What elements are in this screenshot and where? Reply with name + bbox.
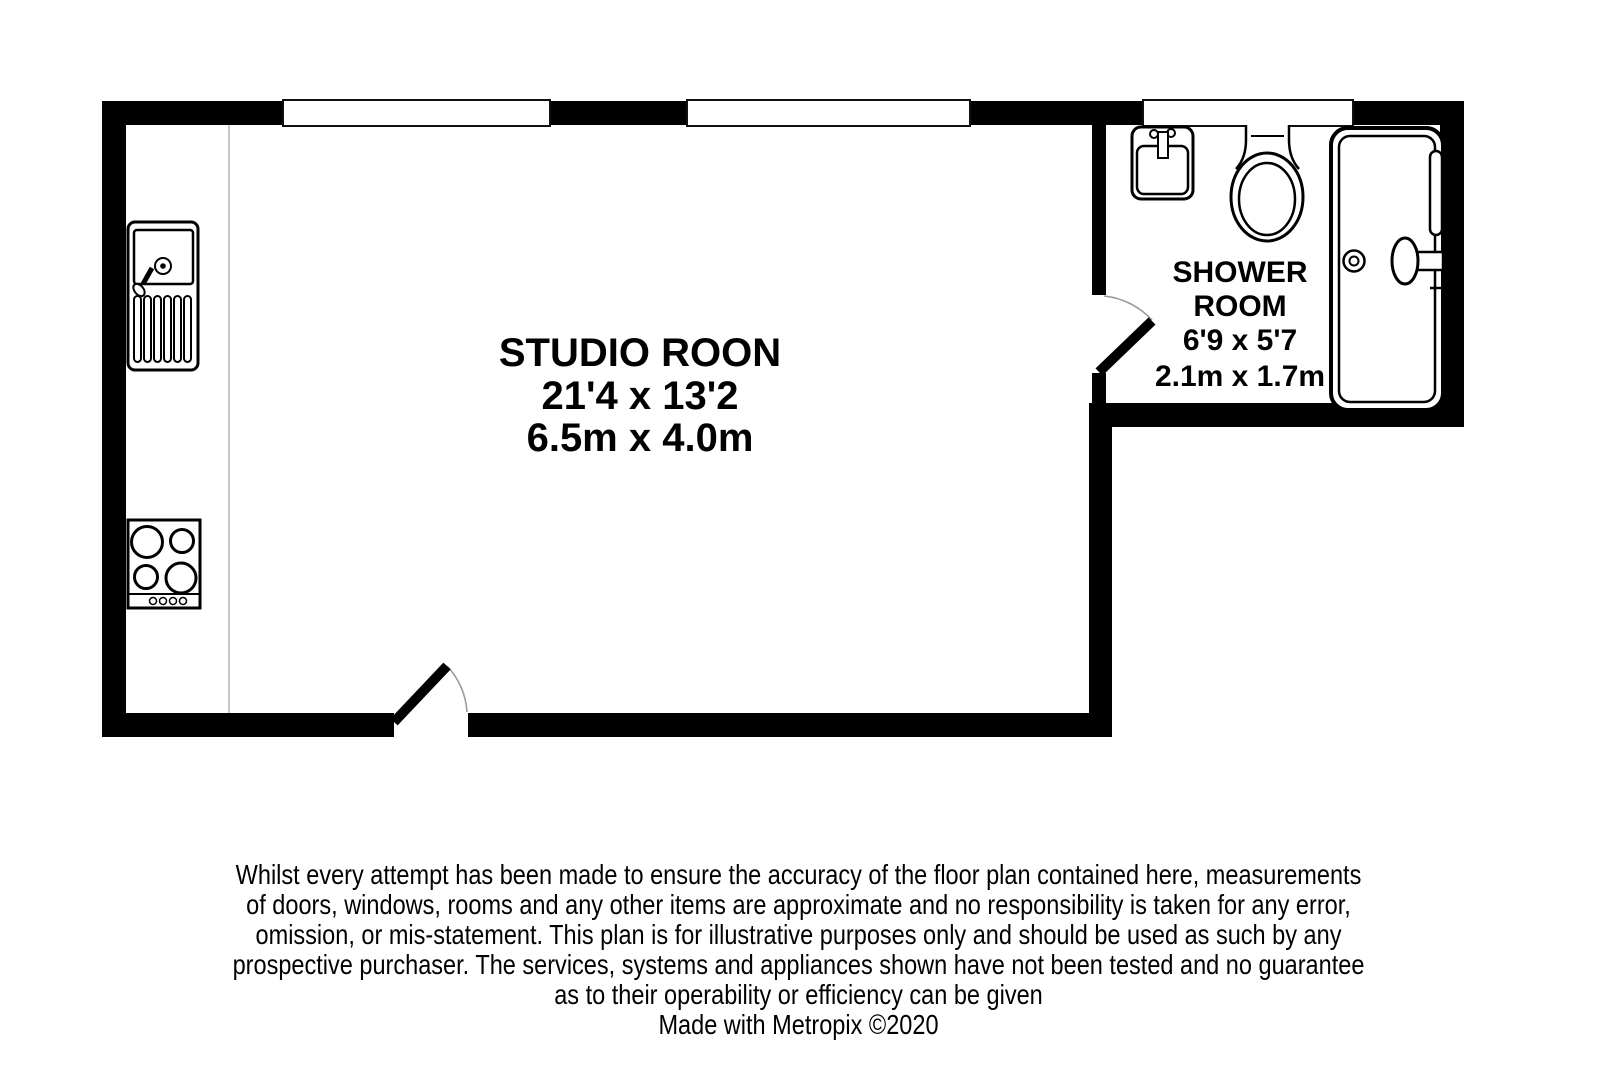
shower-room-size-metric: 2.1m x 1.7m: [1155, 360, 1325, 393]
wall-bottom-left-segment: [102, 713, 394, 737]
shower-head-icon: [1392, 238, 1418, 284]
studio-door-leaf: [394, 666, 447, 722]
shower-door-arc: [1104, 296, 1152, 320]
window-3: [1143, 100, 1353, 126]
kitchen-sink: [128, 222, 198, 370]
toilet-bowl: [1231, 153, 1303, 241]
disclaimer-line: Whilst every attempt has been made to en…: [128, 860, 1469, 890]
wall-bottom-right-segment: [468, 713, 1112, 737]
studio-label: STUDIO ROON 21'4 x 13'2 6.5m x 4.0m: [499, 331, 781, 460]
wall-studio-right: [1089, 403, 1112, 737]
disclaimer-line: of doors, windows, rooms and any other i…: [128, 890, 1469, 920]
toilet: [1231, 123, 1303, 241]
shower-door-leaf: [1099, 321, 1152, 372]
wall-divider-upper: [1092, 101, 1106, 295]
disclaimer-line: omission, or mis-statement. This plan is…: [128, 920, 1469, 950]
studio-door-arc: [447, 666, 467, 712]
hob: [128, 520, 200, 608]
credit-line: Made with Metropix ©2020: [128, 1010, 1469, 1040]
studio-size-metric: 6.5m x 4.0m: [527, 416, 754, 460]
toilet-cistern-fill: [1246, 123, 1289, 143]
kitchen-sink-basin: [134, 230, 193, 284]
shower-door: [1099, 296, 1152, 372]
bathroom-sink-tap-handle: [1150, 130, 1158, 138]
window-1: [283, 100, 550, 126]
windows: [283, 100, 1353, 126]
shower-room-label: SHOWER ROOM 6'9 x 5'7 2.1m x 1.7m: [1155, 256, 1325, 393]
shower-room-size-imperial: 6'9 x 5'7: [1183, 324, 1297, 357]
bathtub-tap-panel: [1430, 151, 1442, 235]
disclaimer: Whilst every attempt has been made to en…: [128, 860, 1469, 1040]
studio-door: [394, 666, 467, 722]
shower-room-name-line1: SHOWER: [1173, 256, 1308, 289]
disclaimer-line: prospective purchaser. The services, sys…: [128, 950, 1469, 980]
shower-room-name-line2: ROOM: [1193, 290, 1286, 323]
wall-left: [102, 101, 126, 737]
bathroom-sink-tap: [1158, 132, 1168, 158]
floorplan: STUDIO ROON 21'4 x 13'2 6.5m x 4.0m SHOW…: [0, 0, 1597, 820]
window-2: [687, 100, 970, 126]
studio-size-imperial: 21'4 x 13'2: [542, 374, 739, 418]
floorplan-page: STUDIO ROON 21'4 x 13'2 6.5m x 4.0m SHOW…: [0, 0, 1597, 1080]
shower-connector: [1417, 252, 1443, 270]
disclaimer-line: as to their operability or efficiency ca…: [128, 980, 1469, 1010]
bathroom-sink: [1132, 127, 1193, 199]
bathtub: [1331, 128, 1443, 410]
studio-name: STUDIO ROON: [499, 331, 781, 375]
kitchen-sink-drain-dot: [160, 263, 166, 269]
